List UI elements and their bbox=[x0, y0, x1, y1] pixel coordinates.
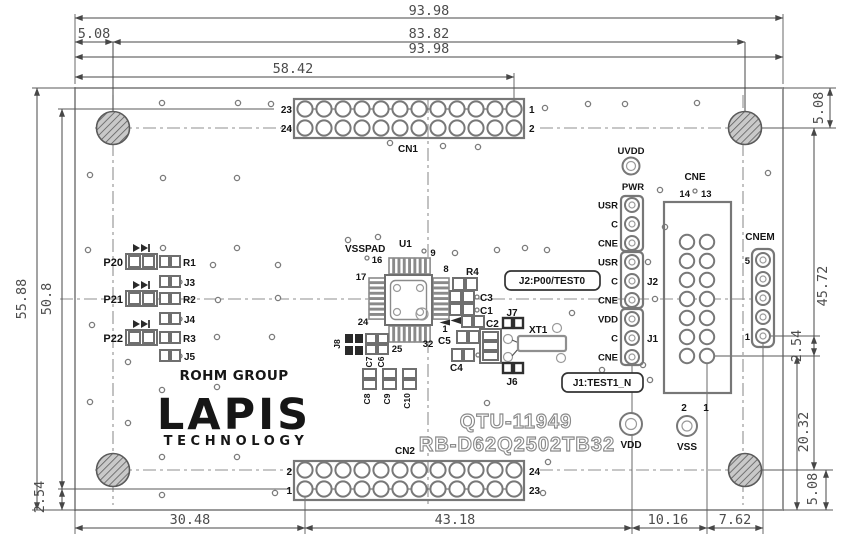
dim-top-width: 93.98 bbox=[409, 3, 450, 19]
j6-label: J6 bbox=[506, 377, 518, 388]
test-pads: VDD VSS bbox=[620, 413, 697, 453]
pcb-dimension-drawing: 93.98 5.08 83.82 93.98 58.42 55.88 50.8 … bbox=[0, 0, 850, 549]
cn1-pin1-label: 1 bbox=[529, 105, 535, 116]
dim-right-lower: 20.32 bbox=[796, 412, 812, 453]
u1-pin16: 16 bbox=[372, 255, 383, 266]
cnem-holes bbox=[756, 253, 770, 343]
u1-pin8: 8 bbox=[443, 264, 448, 275]
p21-label: P21 bbox=[103, 294, 123, 306]
r3-label: R3 bbox=[183, 334, 196, 345]
u1-pin17: 17 bbox=[356, 272, 367, 283]
c10-label: C10 bbox=[402, 393, 412, 409]
dim-bottom-4: 7.62 bbox=[719, 512, 752, 528]
dimension-extension-lines bbox=[32, 14, 836, 534]
dim-bottom-3: 10.16 bbox=[648, 512, 689, 528]
led-resistor-group: P20 P21 P22 R1 J3 R2 J4 R3 J5 bbox=[103, 244, 196, 363]
cn2-pin24-label: 24 bbox=[529, 467, 541, 478]
uvdd-label: UVDD bbox=[618, 146, 645, 157]
vss-pad-label: VSS bbox=[677, 442, 697, 453]
pwr-label: PWR bbox=[622, 182, 644, 193]
u1-pin24: 24 bbox=[358, 317, 369, 328]
j5-label: J5 bbox=[184, 352, 196, 363]
j1-ref: J1 bbox=[647, 334, 659, 345]
c7-label: C7 bbox=[364, 356, 374, 367]
vsspad-label: VSSPAD bbox=[345, 244, 385, 255]
cn1-pin2-label: 2 bbox=[529, 124, 535, 135]
dim-hole-offset: 5.08 bbox=[78, 26, 111, 42]
c3-label: C3 bbox=[480, 293, 493, 304]
cne-pin1-label: 1 bbox=[703, 403, 709, 414]
r1-label: R1 bbox=[183, 258, 196, 269]
hdr-pin-vdd: VDD bbox=[598, 315, 618, 326]
dim-cn1-pin1: 58.42 bbox=[273, 61, 314, 77]
dim-left-height: 55.88 bbox=[14, 279, 30, 320]
power-header: UVDD PWR USR C CNE USR C CNE VDD C CNE J… bbox=[598, 146, 659, 365]
cn2-pin23-label: 23 bbox=[529, 486, 541, 497]
cne-pin2-label: 2 bbox=[681, 403, 687, 414]
dim-right-cnem-pitch: 2.54 bbox=[789, 330, 805, 363]
cn1-pin23-label: 23 bbox=[281, 105, 293, 116]
hdr-pin-usr1: USR bbox=[598, 201, 618, 212]
cnem-ref: CNEM bbox=[745, 232, 774, 243]
hdr-pin-cne3: CNE bbox=[598, 353, 618, 364]
rohm-group-text: ROHM GROUP bbox=[179, 368, 288, 384]
connector-cn1: 23 24 1 2 CN1 bbox=[281, 99, 535, 155]
hdr-pin-c3: C bbox=[611, 334, 618, 345]
connector-cnem: CNEM 5 1 bbox=[745, 232, 775, 347]
board-number: QTU-11949 bbox=[460, 411, 572, 433]
c5-label: C5 bbox=[438, 336, 451, 347]
led-icon bbox=[133, 281, 148, 289]
r4-label: R4 bbox=[466, 267, 479, 278]
cn2-holes bbox=[297, 462, 521, 496]
connector-cne: CNE 14 13 2 1 bbox=[664, 172, 731, 414]
hdr-pin-cne1: CNE bbox=[598, 239, 618, 250]
board-titles: QTU-11949 RB-D62Q2502TB32 bbox=[419, 411, 615, 456]
j2-ref: J2 bbox=[647, 277, 659, 288]
u1-pin25: 25 bbox=[392, 344, 403, 355]
u1-pin9: 9 bbox=[430, 248, 435, 259]
lapis-logo: LAPIS bbox=[157, 390, 311, 440]
led-icon bbox=[133, 244, 148, 252]
cn1-holes bbox=[297, 101, 521, 135]
hdr-pin-cne2: CNE bbox=[598, 296, 618, 307]
cn1-pin24-label: 24 bbox=[281, 124, 293, 135]
u1-pin1: 1 bbox=[442, 324, 448, 335]
cne-pin14-label: 14 bbox=[679, 189, 690, 200]
u1-pin32: 32 bbox=[423, 339, 434, 350]
power-header-pins bbox=[625, 198, 639, 364]
c9-label: C9 bbox=[382, 393, 392, 404]
arrow-icon bbox=[451, 317, 462, 324]
cap-bank-group: J8 C7 C6 C8 C9 C10 bbox=[332, 334, 416, 409]
dim-right-span: 45.72 bbox=[815, 266, 831, 307]
dim-bottom-2: 43.18 bbox=[435, 512, 476, 528]
hdr-pin-c1: C bbox=[611, 220, 618, 231]
cn1-ref: CN1 bbox=[398, 144, 418, 155]
led-icon bbox=[133, 320, 148, 328]
branding: ROHM GROUP LAPIS TECHNOLOGY bbox=[157, 368, 311, 449]
c8-label: C8 bbox=[362, 393, 372, 404]
cn2-ref: CN2 bbox=[395, 446, 415, 457]
cnem-pin1-label: 1 bbox=[745, 332, 751, 343]
vdd-pad-label: VDD bbox=[620, 440, 641, 451]
dim-right-top-offset: 5.08 bbox=[811, 92, 827, 125]
dim-right-bottom-offset: 5.08 bbox=[805, 473, 821, 506]
u1-ref: U1 bbox=[399, 239, 412, 250]
j7-label: J7 bbox=[506, 308, 518, 319]
j1-note: J1:TEST1_N bbox=[573, 378, 631, 389]
dim-left-pitch: 2.54 bbox=[32, 481, 48, 514]
c4-label: C4 bbox=[450, 363, 463, 374]
xt1-body bbox=[518, 336, 566, 351]
j8-label: J8 bbox=[332, 339, 342, 349]
c6-label: C6 bbox=[376, 356, 386, 367]
cnem-pin5-label: 5 bbox=[745, 256, 751, 267]
hdr-pin-c2: C bbox=[611, 277, 618, 288]
j2-note: J2:P00/TEST0 bbox=[519, 276, 586, 287]
lapis-technology-text: TECHNOLOGY bbox=[164, 434, 309, 449]
part-number: RB-D62Q2502TB32 bbox=[419, 434, 615, 456]
cne-ref: CNE bbox=[684, 172, 705, 183]
drawing-canvas: 93.98 5.08 83.82 93.98 58.42 55.88 50.8 … bbox=[0, 0, 850, 549]
dim-hole-span: 83.82 bbox=[409, 26, 450, 42]
cn2-pin2-label: 2 bbox=[286, 467, 292, 478]
r2-label: R2 bbox=[183, 295, 196, 306]
xt1-label: XT1 bbox=[529, 325, 548, 336]
c1-label: C1 bbox=[480, 306, 493, 317]
cn2-pin1-label: 1 bbox=[286, 486, 292, 497]
p22-label: P22 bbox=[103, 333, 123, 345]
hdr-pin-usr2: USR bbox=[598, 258, 618, 269]
p20-label: P20 bbox=[103, 257, 123, 269]
dim-bottom-1: 30.48 bbox=[170, 512, 211, 528]
cne-pin13-label: 13 bbox=[701, 189, 712, 200]
j4-label: J4 bbox=[184, 315, 196, 326]
dim-top-width-2: 93.98 bbox=[409, 41, 450, 57]
dim-left-span: 50.8 bbox=[39, 283, 55, 316]
note-boxes: J2:P00/TEST0 J1:TEST1_N bbox=[505, 271, 643, 392]
j3-label: J3 bbox=[184, 278, 196, 289]
